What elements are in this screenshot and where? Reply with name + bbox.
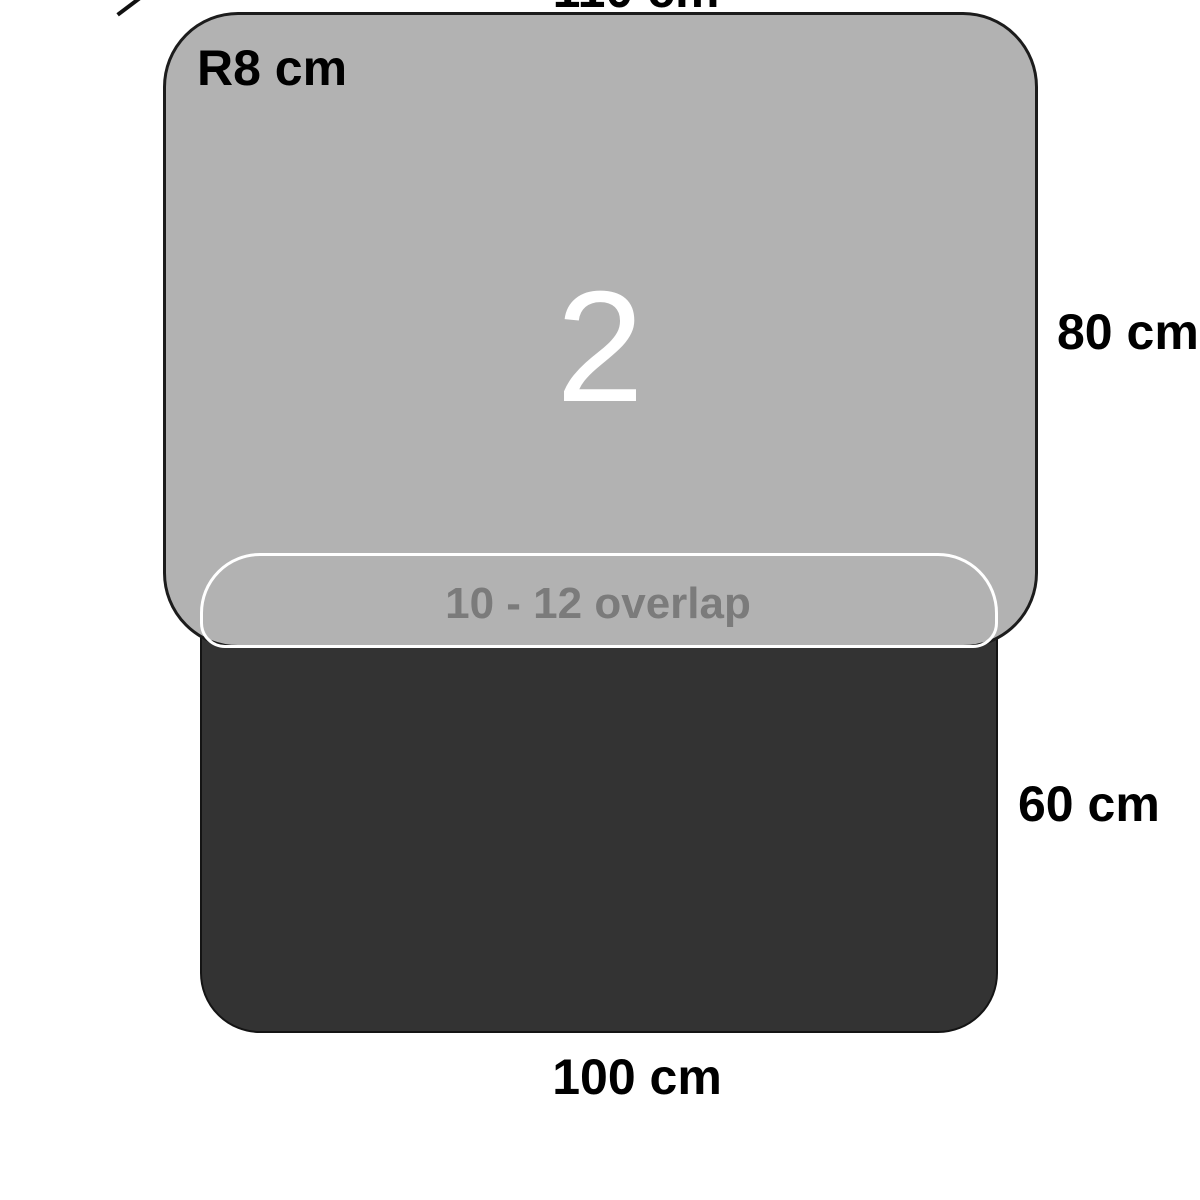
lower-height-label: 60 cm xyxy=(1018,776,1160,834)
overlap-label: 10 - 12 overlap xyxy=(445,580,751,628)
upper-height-label: 80 cm xyxy=(1057,304,1199,362)
bottom-width-label: 100 cm xyxy=(552,1049,722,1107)
mat-number-label: 2 xyxy=(556,268,644,426)
top-width-label: 110 cm xyxy=(553,0,720,20)
corner-radius-tick xyxy=(116,0,147,16)
dimension-diagram: 110 cm 10 - 12 overlap R8 cm 2 80 cm 60 … xyxy=(0,0,1200,1200)
corner-radius-label: R8 cm xyxy=(197,40,347,98)
